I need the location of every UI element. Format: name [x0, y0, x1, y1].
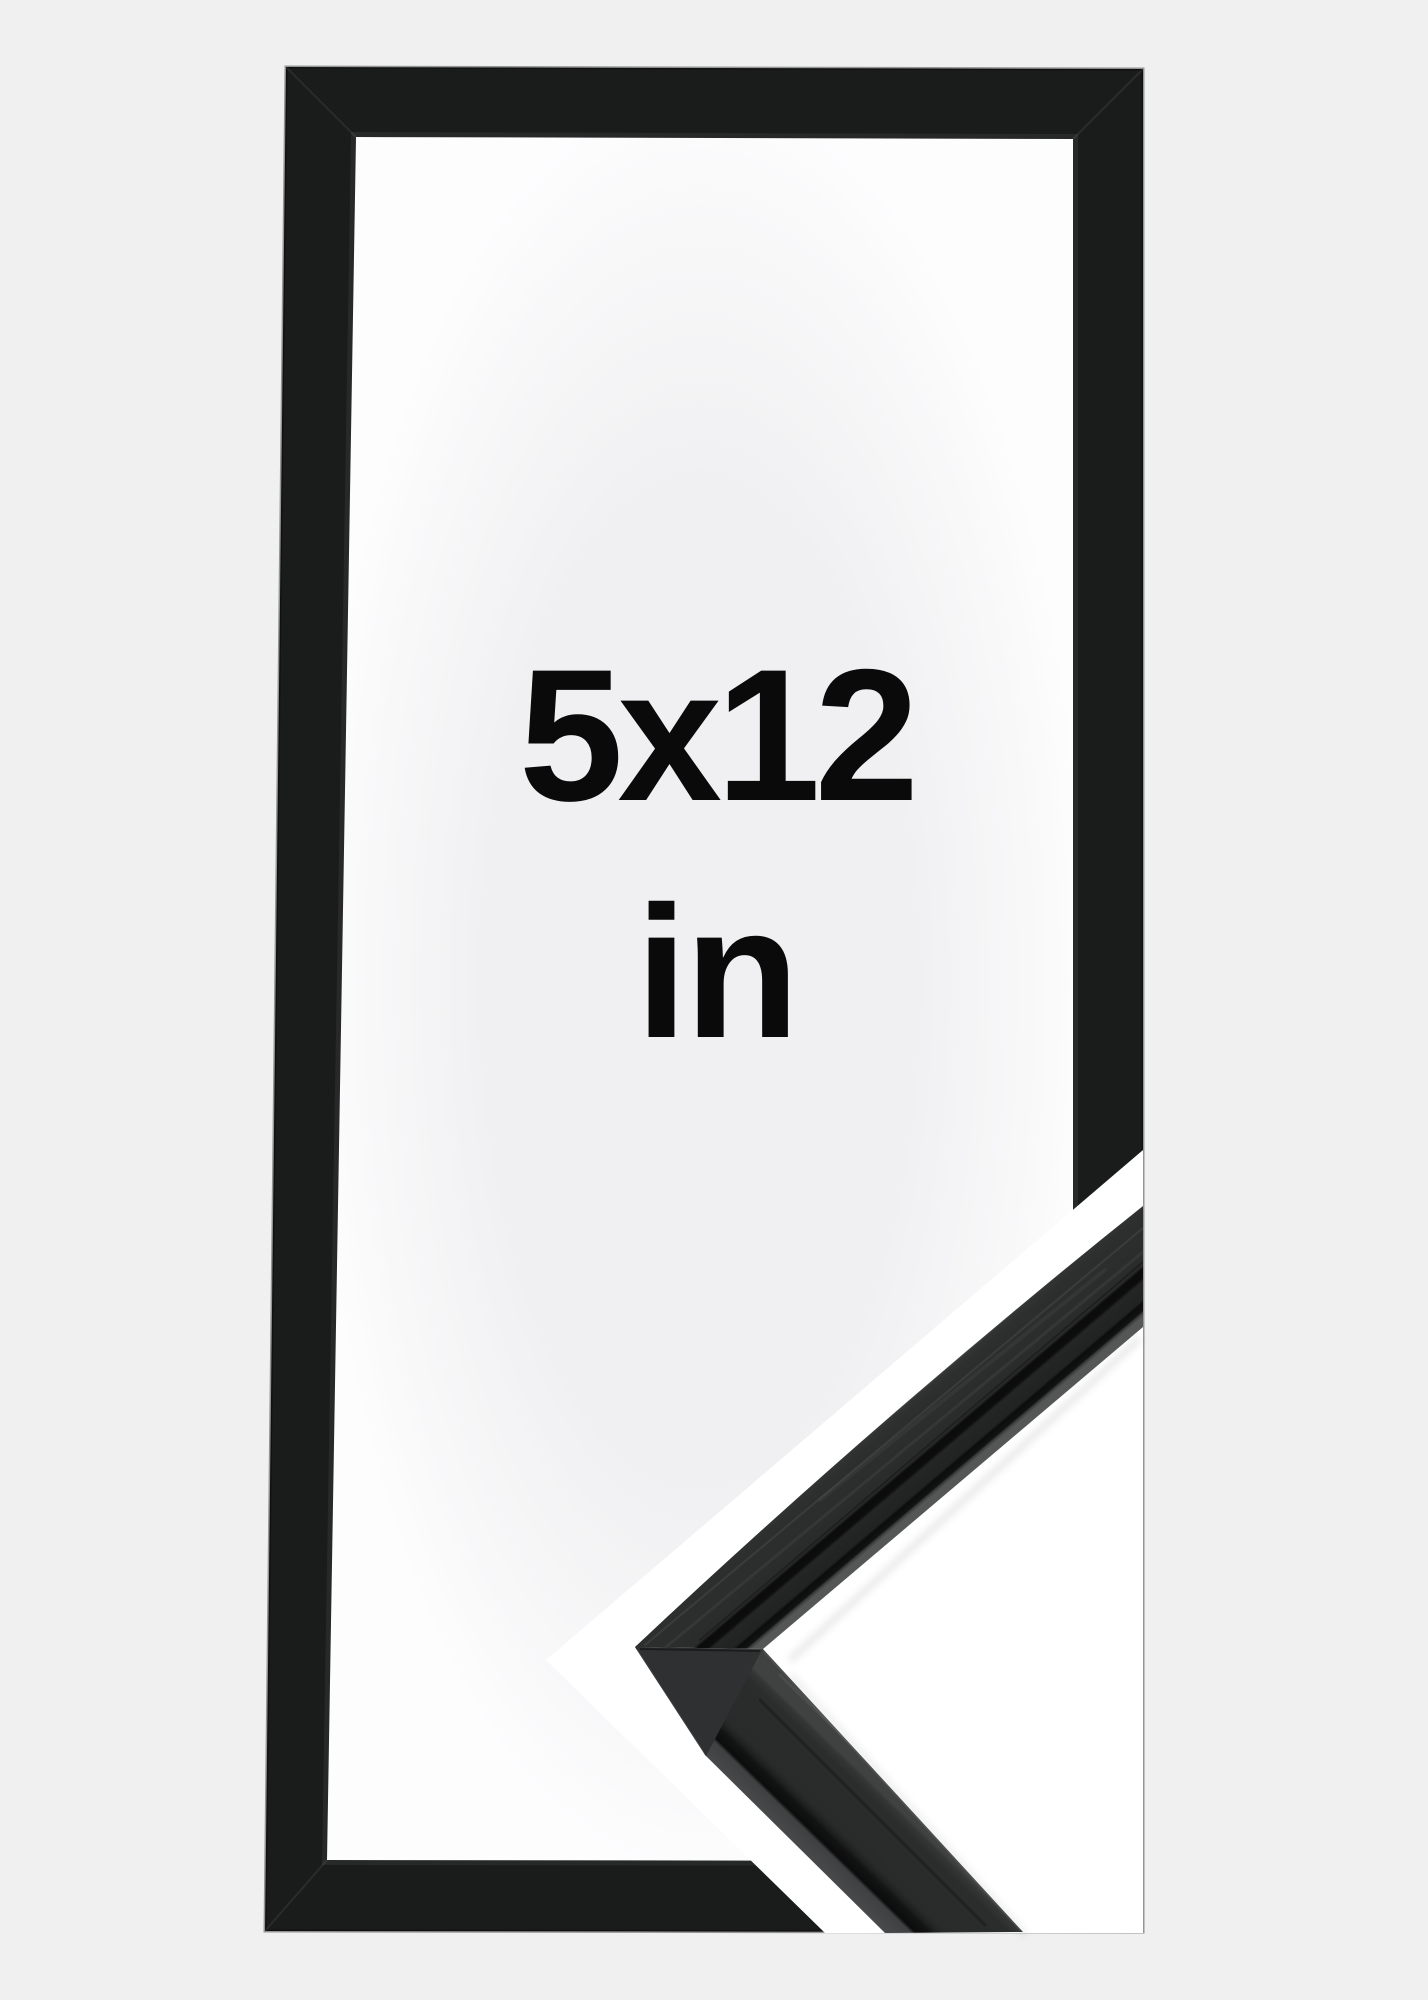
size-unit-text: in	[635, 867, 796, 1077]
size-dimensions-text: 5x12	[519, 630, 913, 840]
frame-size-illustration: 5x12 in	[0, 0, 1428, 2000]
product-image-canvas: 5x12 in	[0, 0, 1428, 2000]
